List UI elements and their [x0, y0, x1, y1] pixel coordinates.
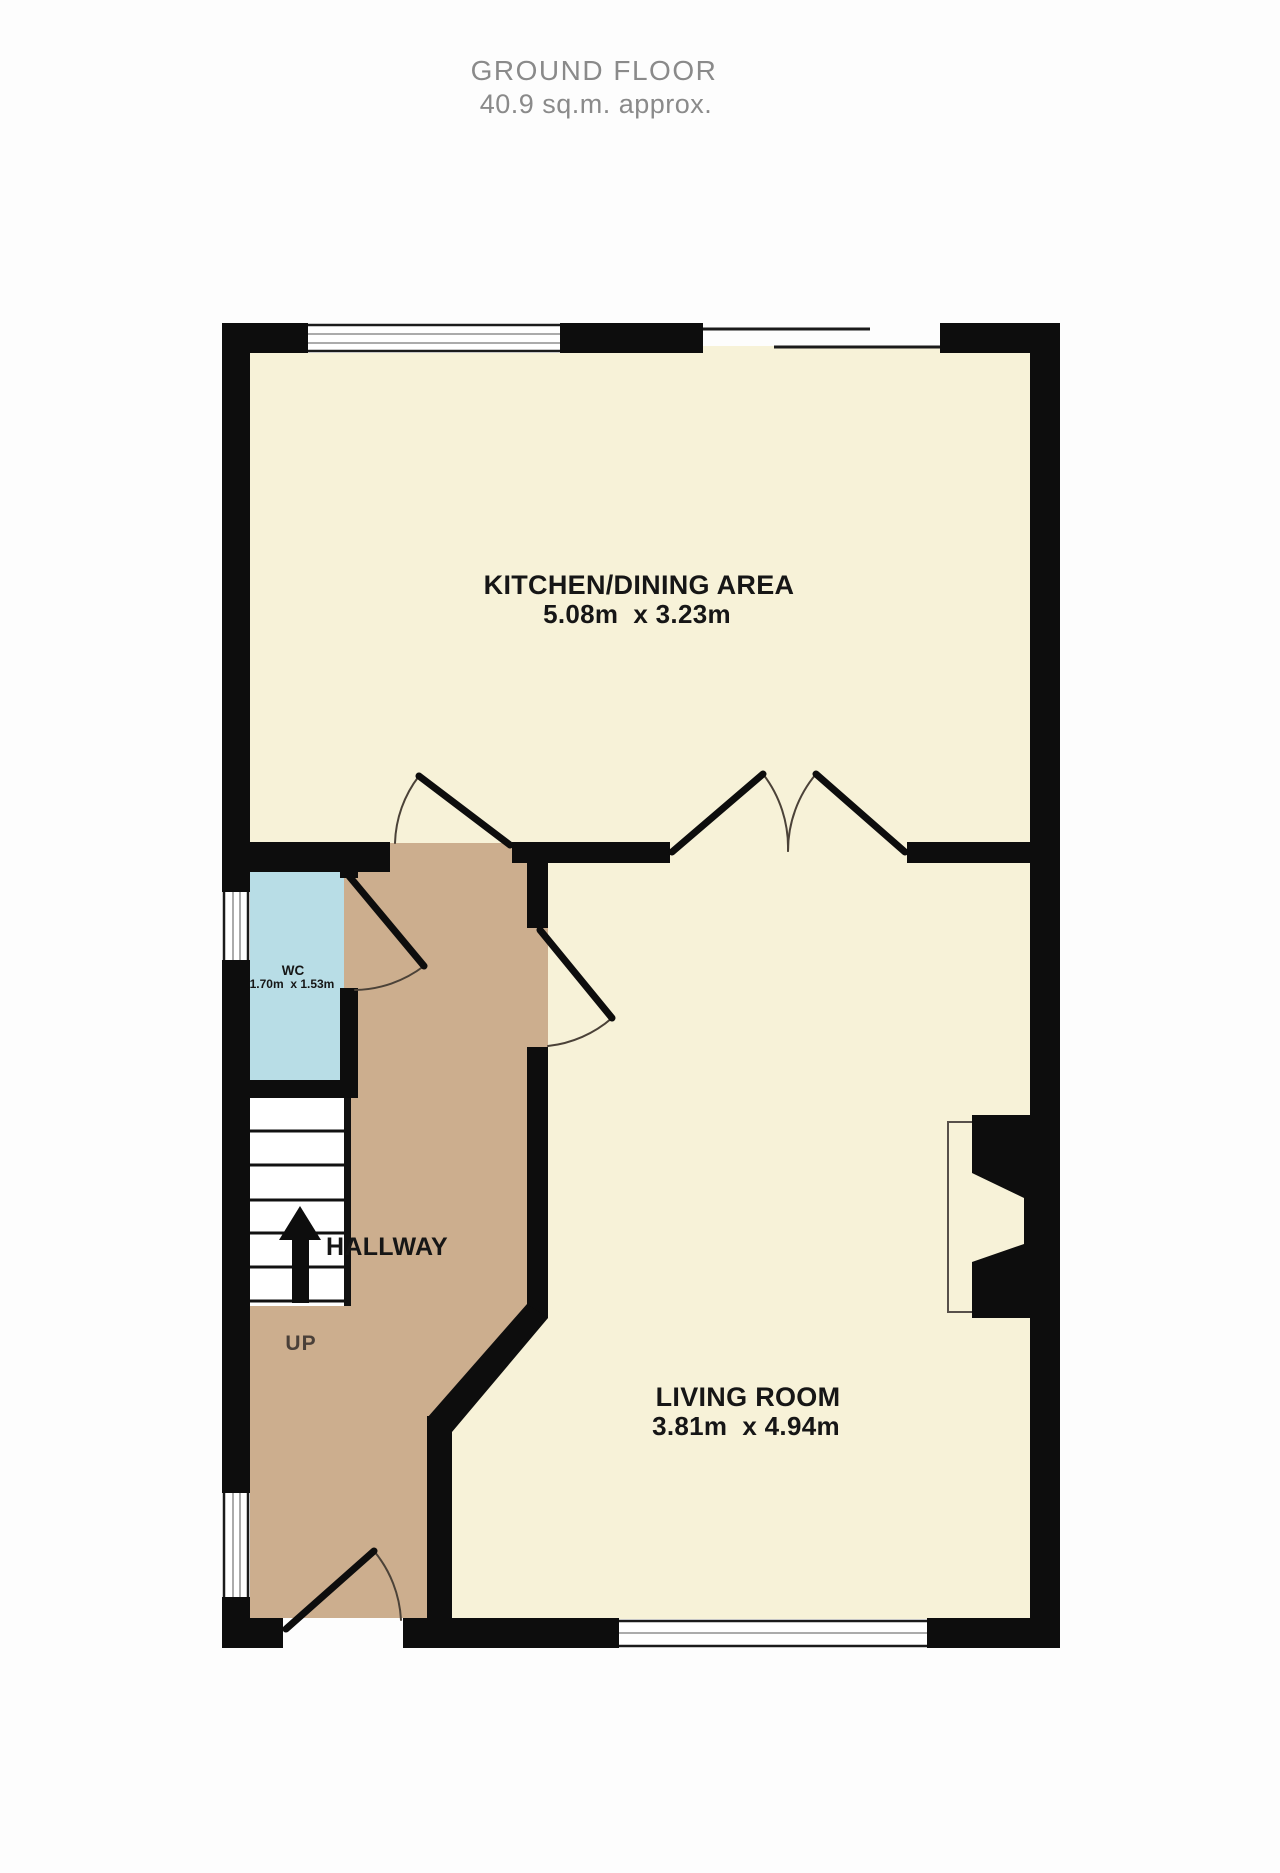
front-door-opening	[283, 1618, 403, 1648]
page-title: GROUND FLOOR	[471, 55, 718, 86]
wall-left	[222, 323, 250, 1648]
window-left-wc	[222, 892, 250, 960]
wall-wc-bottom	[222, 1080, 358, 1098]
wall-top-mid	[560, 323, 703, 353]
kitchen-dims: 5.08m x 3.23m	[543, 599, 731, 629]
floor-plan-page: GROUND FLOOR 40.9 sq.m. approx. KITCHEN/…	[0, 0, 1280, 1873]
window-left-hall	[222, 1493, 250, 1597]
wc-dims: 1.70m x 1.53m	[250, 977, 335, 991]
wall-bottom-3	[927, 1618, 1060, 1648]
living-room-label: LIVING ROOM	[656, 1382, 841, 1412]
wall-right	[1030, 323, 1060, 1648]
wall-hall-living-lower	[527, 1047, 548, 1318]
wc-label: WC	[282, 963, 305, 978]
window-top	[308, 323, 560, 353]
stairs-edge	[344, 1098, 351, 1306]
floor-plan: GROUND FLOOR 40.9 sq.m. approx. KITCHEN/…	[0, 0, 1280, 1873]
wall-hall-living-upper	[527, 842, 548, 928]
window-bottom	[619, 1619, 927, 1648]
sliding-door-top	[703, 323, 940, 354]
page-subtitle: 40.9 sq.m. approx.	[480, 89, 713, 119]
wall-mid-right	[907, 842, 1030, 863]
living-room-dims: 3.81m x 4.94m	[652, 1411, 840, 1441]
up-label: UP	[285, 1332, 316, 1355]
wall-bottom-2	[403, 1618, 619, 1648]
kitchen-label: KITCHEN/DINING AREA	[484, 570, 795, 600]
wall-living-left-lower	[427, 1416, 452, 1620]
wall-mid-left	[222, 842, 390, 872]
hallway-label: HALLWAY	[326, 1233, 448, 1261]
wall-bottom-1	[222, 1618, 283, 1648]
